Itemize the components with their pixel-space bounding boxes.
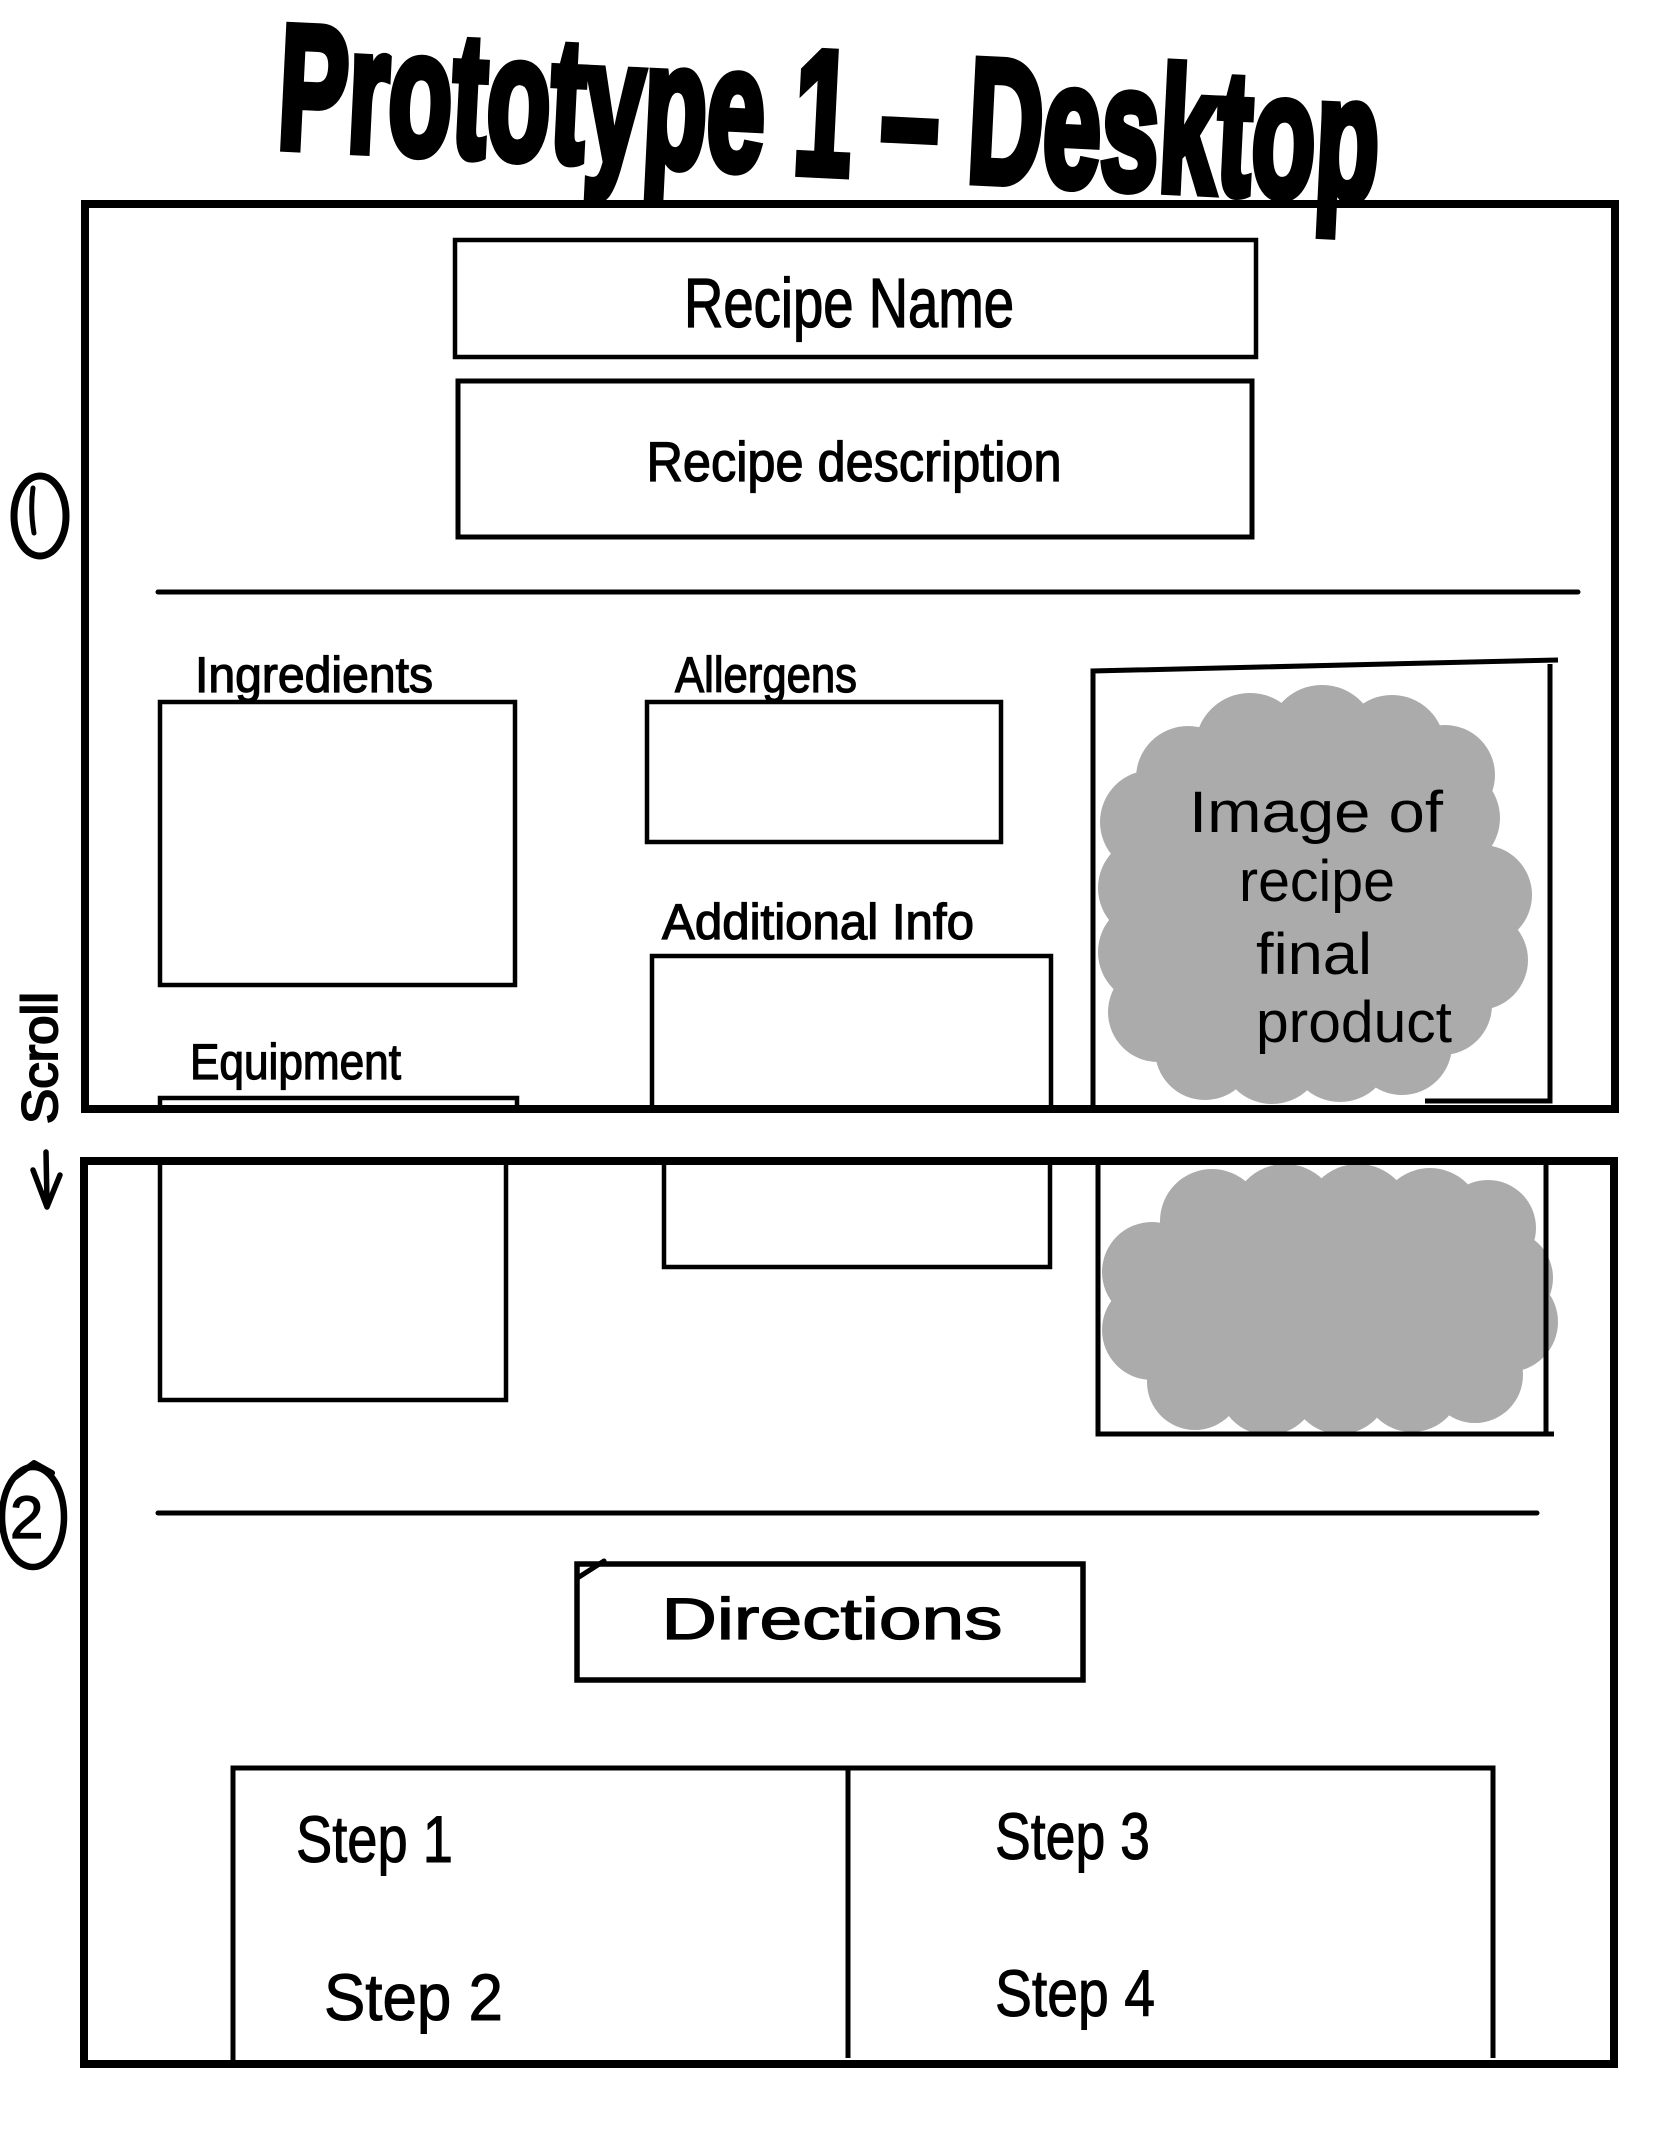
- svg-text:final: final: [1256, 922, 1372, 987]
- svg-text:Step 3: Step 3: [995, 1799, 1150, 1873]
- svg-text:Recipe Name: Recipe Name: [684, 264, 1014, 342]
- svg-text:recipe: recipe: [1239, 849, 1395, 914]
- svg-text:Step 2: Step 2: [324, 1960, 503, 2034]
- svg-text:Equipment: Equipment: [190, 1034, 401, 1090]
- svg-text:Ingredients: Ingredients: [195, 647, 433, 703]
- svg-text:Image of: Image of: [1189, 780, 1444, 845]
- svg-text:product: product: [1256, 990, 1452, 1055]
- svg-text:Step 1: Step 1: [296, 1802, 453, 1876]
- svg-text:Scroll: Scroll: [12, 992, 68, 1124]
- svg-text:2: 2: [10, 1484, 43, 1551]
- svg-text:Additional Info: Additional Info: [662, 894, 974, 950]
- svg-text:Directions: Directions: [662, 1587, 1003, 1652]
- svg-text:Step 4: Step 4: [995, 1956, 1155, 2030]
- svg-text:Allergens: Allergens: [675, 647, 857, 703]
- svg-text:Recipe description: Recipe description: [647, 430, 1062, 493]
